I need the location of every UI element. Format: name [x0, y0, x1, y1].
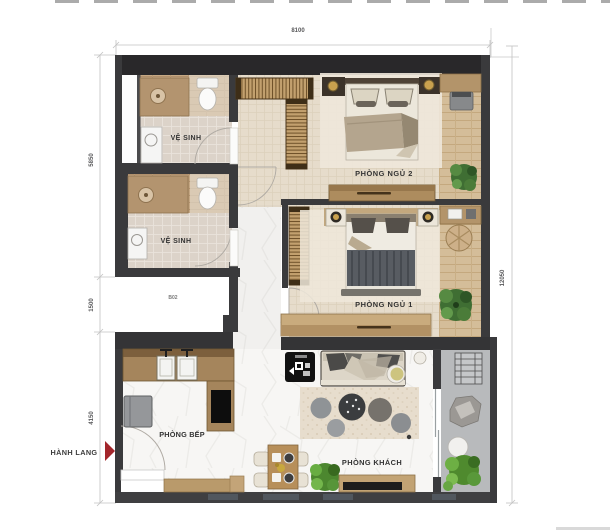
- svg-text:8100: 8100: [291, 28, 305, 34]
- svg-text:5850: 5850: [89, 153, 95, 167]
- svg-text:1500: 1500: [89, 298, 95, 312]
- svg-text:PHÒNG KHÁCH: PHÒNG KHÁCH: [342, 458, 402, 467]
- svg-text:PHÒNG BẾP: PHÒNG BẾP: [159, 429, 205, 439]
- svg-text:VỆ SINH: VỆ SINH: [171, 133, 202, 142]
- svg-text:PHÒNG NGỦ 2: PHÒNG NGỦ 2: [355, 169, 413, 178]
- svg-text:VỆ SINH: VỆ SINH: [161, 236, 192, 245]
- svg-text:PHÒNG NGỦ 1: PHÒNG NGỦ 1: [355, 300, 413, 309]
- svg-text:12050: 12050: [500, 269, 506, 286]
- svg-text:HÀNH LANG: HÀNH LANG: [51, 448, 98, 457]
- svg-text:B02: B02: [168, 295, 177, 301]
- svg-text:4150: 4150: [89, 411, 95, 425]
